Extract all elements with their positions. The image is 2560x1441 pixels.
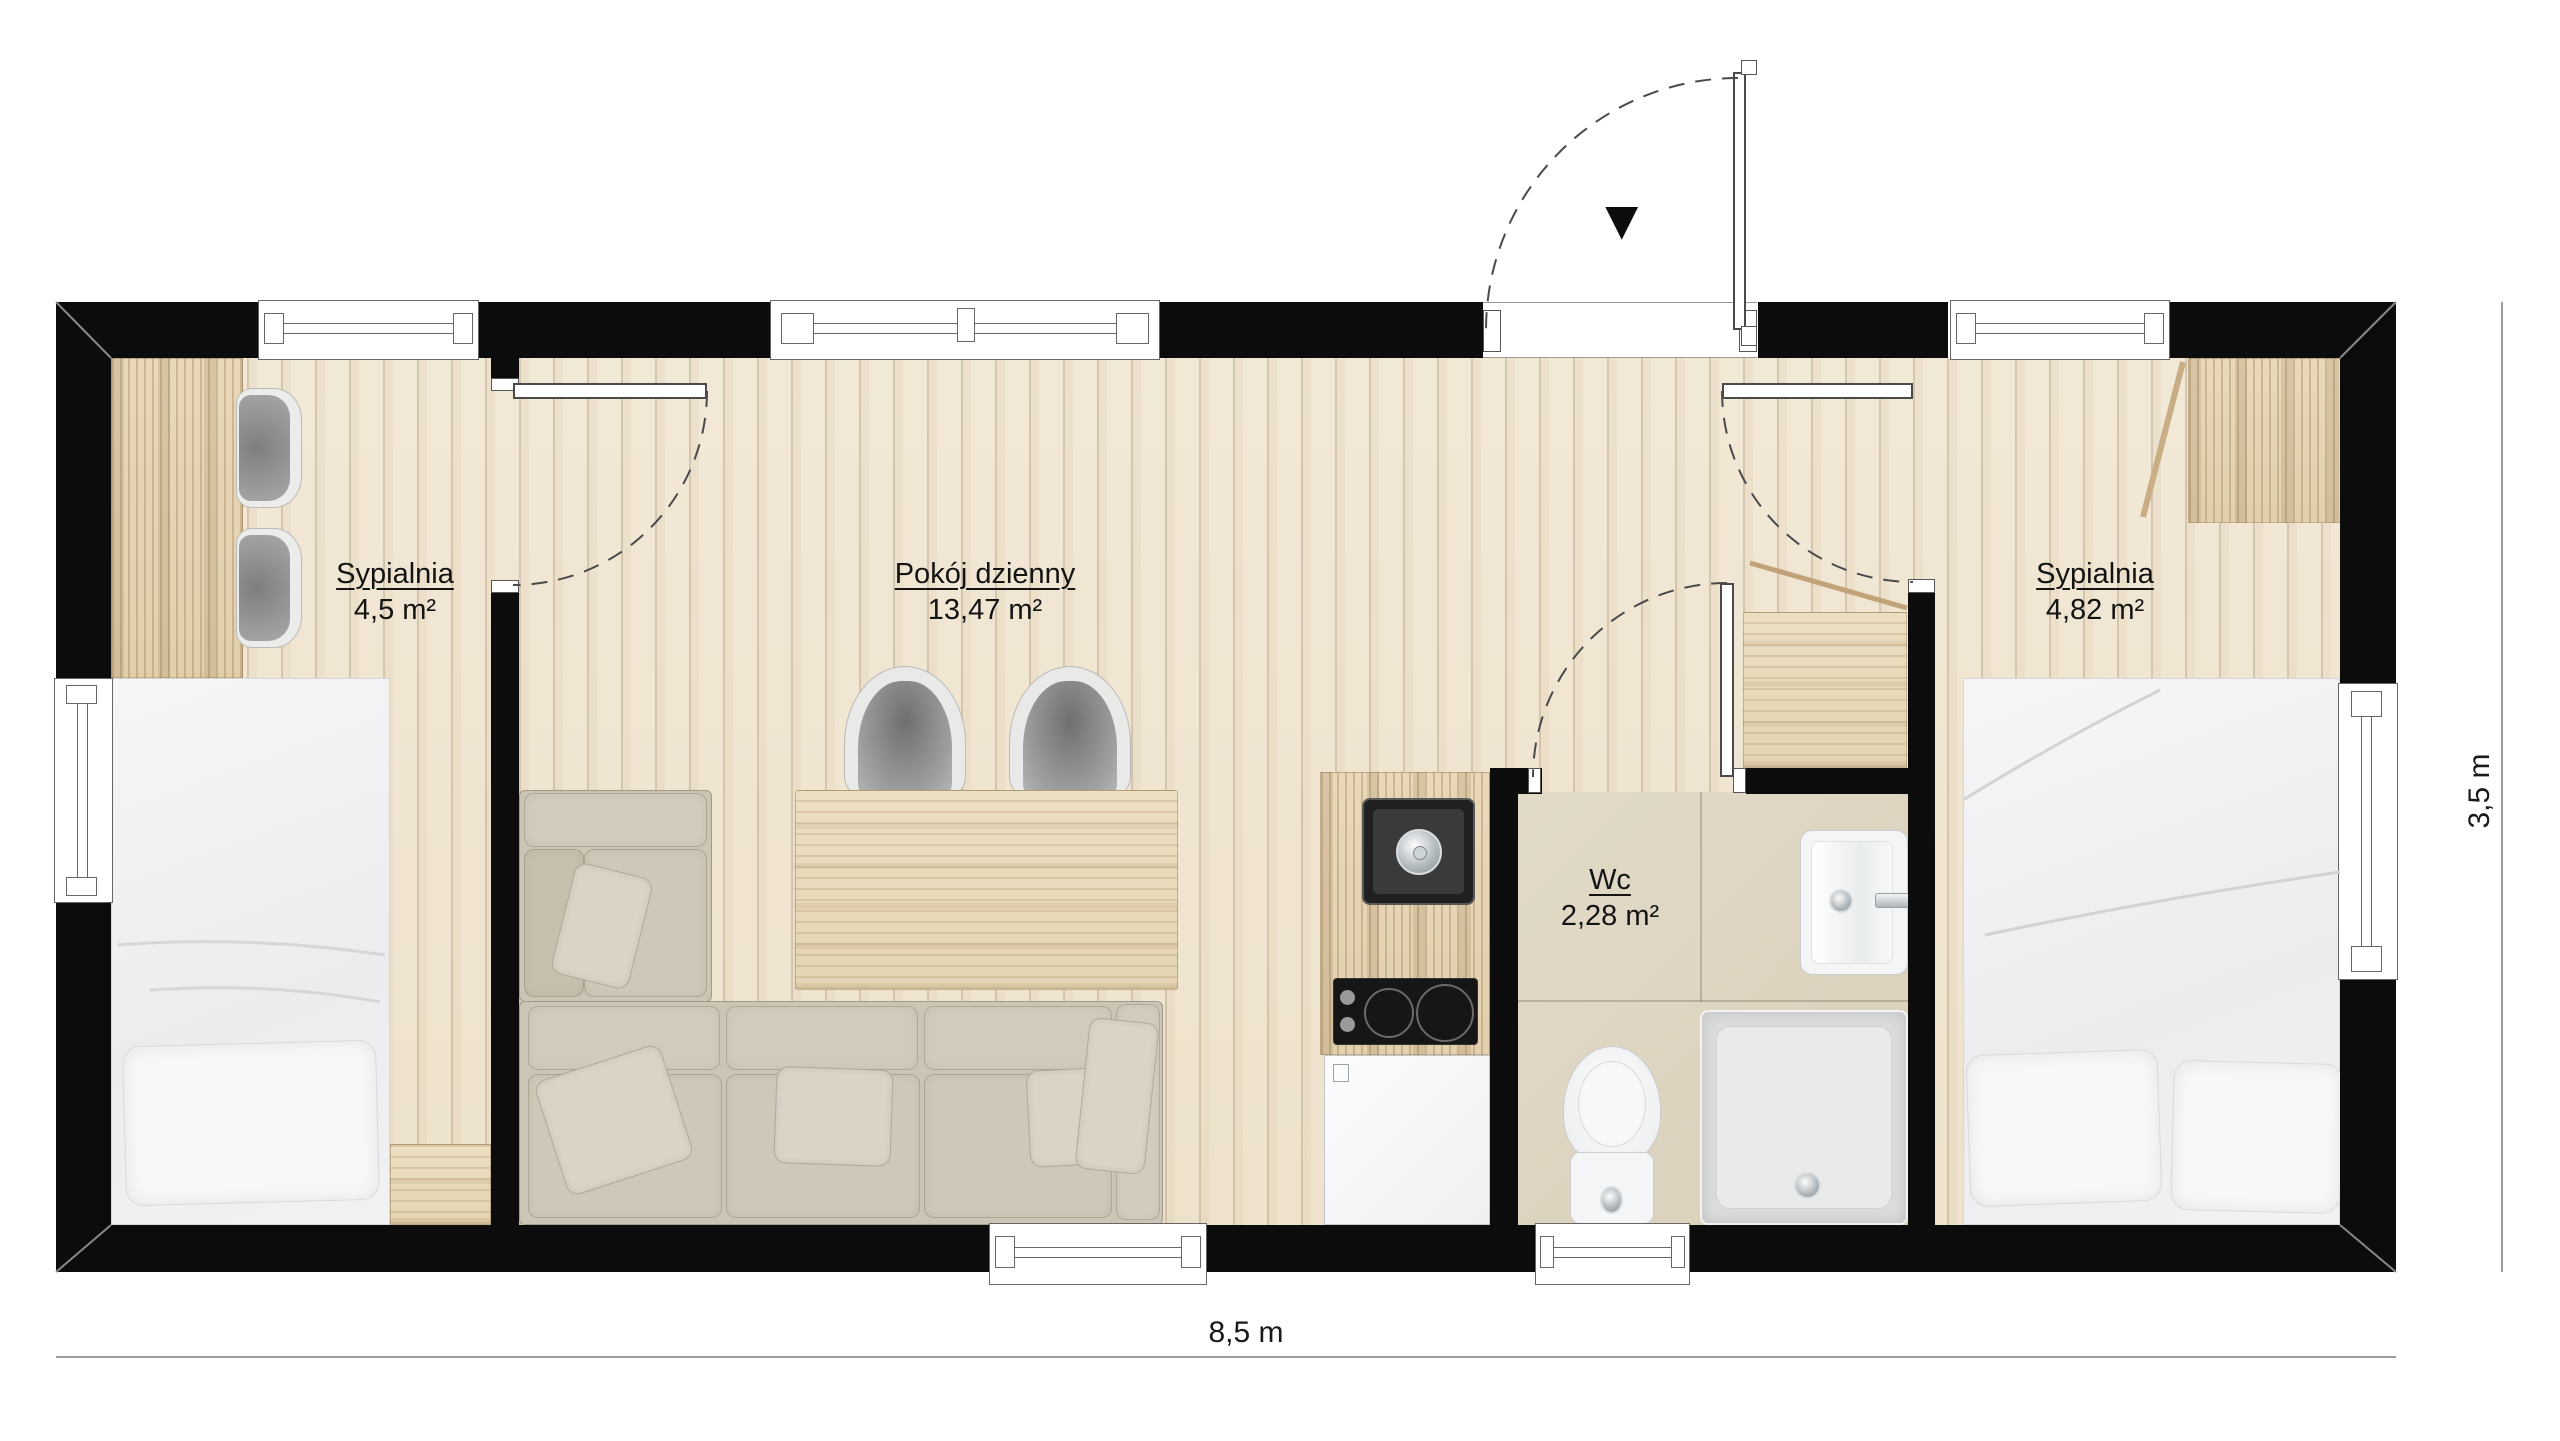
window-double xyxy=(770,300,1160,360)
window xyxy=(1950,300,2170,360)
window-jamb xyxy=(264,313,284,344)
window xyxy=(2338,683,2398,980)
window-mullion xyxy=(957,308,975,342)
window-jamb xyxy=(995,1236,1014,1268)
door-hinge xyxy=(1741,326,1757,346)
bed-pillow xyxy=(1965,1049,2162,1208)
door-jamb xyxy=(1733,768,1746,793)
wall-left xyxy=(56,903,111,1272)
wall-top xyxy=(479,302,770,358)
bed-pillow xyxy=(2170,1060,2344,1214)
toilet-flush-button xyxy=(1600,1186,1623,1214)
cooktop-knob xyxy=(1340,990,1355,1005)
window-jamb xyxy=(1956,313,1975,344)
sofa-back-cushion xyxy=(924,1006,1112,1070)
window-jamb xyxy=(66,685,97,705)
wall-wc-top xyxy=(1746,768,1908,794)
window-glass xyxy=(272,323,465,334)
door-hinge xyxy=(1741,60,1757,75)
toilet-seat-inner xyxy=(1578,1061,1646,1147)
room-area: 4,82 m² xyxy=(1975,592,2215,628)
wall-top xyxy=(1758,302,1948,358)
window-jamb xyxy=(1116,313,1149,344)
partition-bedroom-left xyxy=(491,358,519,378)
window xyxy=(989,1223,1207,1285)
room-name: Wc xyxy=(1535,862,1685,898)
dimension-height-label: 3,5 m xyxy=(2463,731,2497,851)
foot-bench xyxy=(390,1144,491,1225)
wall-bottom xyxy=(56,1225,989,1272)
sink-drain-dot xyxy=(1413,846,1427,860)
dining-table xyxy=(795,790,1178,990)
window-jamb xyxy=(2144,313,2163,344)
bed-pillow xyxy=(122,1040,380,1207)
partition-kitchen-wc xyxy=(1490,768,1518,1225)
window-jamb xyxy=(1540,1236,1554,1268)
cooktop-knob xyxy=(1340,1017,1355,1032)
cooktop xyxy=(1333,978,1478,1045)
dimension-width-label: 8,5 m xyxy=(1146,1316,1346,1350)
shower-tray xyxy=(1700,1010,1908,1225)
room-label-wc: Wc 2,28 m² xyxy=(1535,862,1685,934)
window-jamb xyxy=(2351,691,2382,717)
room-name: Sypialnia xyxy=(270,556,520,592)
wall-right xyxy=(2340,302,2396,683)
throw-pillow xyxy=(773,1066,893,1167)
room-name: Sypialnia xyxy=(1975,556,2215,592)
corner-sofa-vertical xyxy=(519,790,712,1002)
window-glass xyxy=(1545,1247,1680,1259)
room-name: Pokój dzienny xyxy=(860,556,1110,592)
burner xyxy=(1364,988,1414,1038)
wardrobe-desk xyxy=(111,358,243,678)
door-jamb xyxy=(1908,579,1935,593)
corner-sofa-horizontal xyxy=(519,1001,1163,1225)
tile-grout-line xyxy=(1700,792,1702,1002)
chair-seat xyxy=(1023,681,1117,797)
entry-jamb xyxy=(1483,310,1501,352)
window-jamb xyxy=(2351,946,2382,972)
fridge xyxy=(1324,1055,1490,1225)
window-glass xyxy=(2361,702,2372,962)
toilet-bowl xyxy=(1563,1046,1661,1164)
chair-seat xyxy=(239,395,290,501)
sofa-back-cushion xyxy=(726,1006,918,1070)
window xyxy=(1535,1223,1690,1285)
partition-bedroom-right xyxy=(1908,593,1935,1225)
room-area: 13,47 m² xyxy=(860,592,1110,628)
burner xyxy=(1416,984,1474,1042)
wardrobe xyxy=(2188,358,2347,523)
window-jamb xyxy=(781,313,814,344)
bedroom-left-door-leaf xyxy=(513,383,707,399)
door-jamb xyxy=(1528,768,1541,793)
window-jamb xyxy=(453,313,473,344)
wall-top xyxy=(1160,302,1483,358)
window-jamb xyxy=(1671,1236,1685,1268)
room-area: 4,5 m² xyxy=(270,592,520,628)
wall-bottom xyxy=(1207,1225,1535,1272)
kitchen-sink xyxy=(1362,798,1475,905)
wall-right xyxy=(2340,980,2396,1272)
room-label-bedroom-right: Sypialnia 4,82 m² xyxy=(1975,556,2215,628)
sofa-armrest xyxy=(524,793,707,847)
shower-drain xyxy=(1794,1172,1821,1199)
washbasin xyxy=(1800,830,1908,975)
basin-drain xyxy=(1829,889,1853,913)
entrance-arrow-icon: ▼ xyxy=(1594,192,1649,248)
window xyxy=(258,300,479,360)
window-glass xyxy=(1003,1247,1193,1259)
room-label-bedroom-left: Sypialnia 4,5 m² xyxy=(270,556,520,628)
dimension-line-width xyxy=(56,1356,2396,1358)
wc-door-leaf xyxy=(1720,583,1734,777)
window xyxy=(54,678,113,903)
bedroom-right-door-leaf xyxy=(1722,383,1913,399)
fridge-vent xyxy=(1333,1064,1349,1082)
window-jamb xyxy=(66,877,97,897)
partition-bedroom-left xyxy=(491,593,519,1225)
dimension-line-height xyxy=(2501,302,2503,1272)
window-glass xyxy=(77,692,88,888)
window-glass xyxy=(1964,323,2156,334)
room-label-living-room: Pokój dzienny 13,47 m² xyxy=(860,556,1110,628)
window-jamb xyxy=(1181,1236,1200,1268)
chair xyxy=(236,388,302,508)
wall-left xyxy=(56,302,111,678)
tile-grout-line xyxy=(1518,1000,1908,1002)
floor-plan-canvas: ▼ Sypialnia 4,5 m² Pokój dzienny 13,47 m… xyxy=(0,0,2560,1441)
chair-seat xyxy=(858,681,952,797)
room-area: 2,28 m² xyxy=(1535,898,1685,934)
wall-bottom xyxy=(1690,1225,2396,1272)
entry-opening xyxy=(1483,302,1757,358)
loft-ladder-storage xyxy=(1743,612,1907,768)
entry-door-leaf xyxy=(1733,72,1746,330)
